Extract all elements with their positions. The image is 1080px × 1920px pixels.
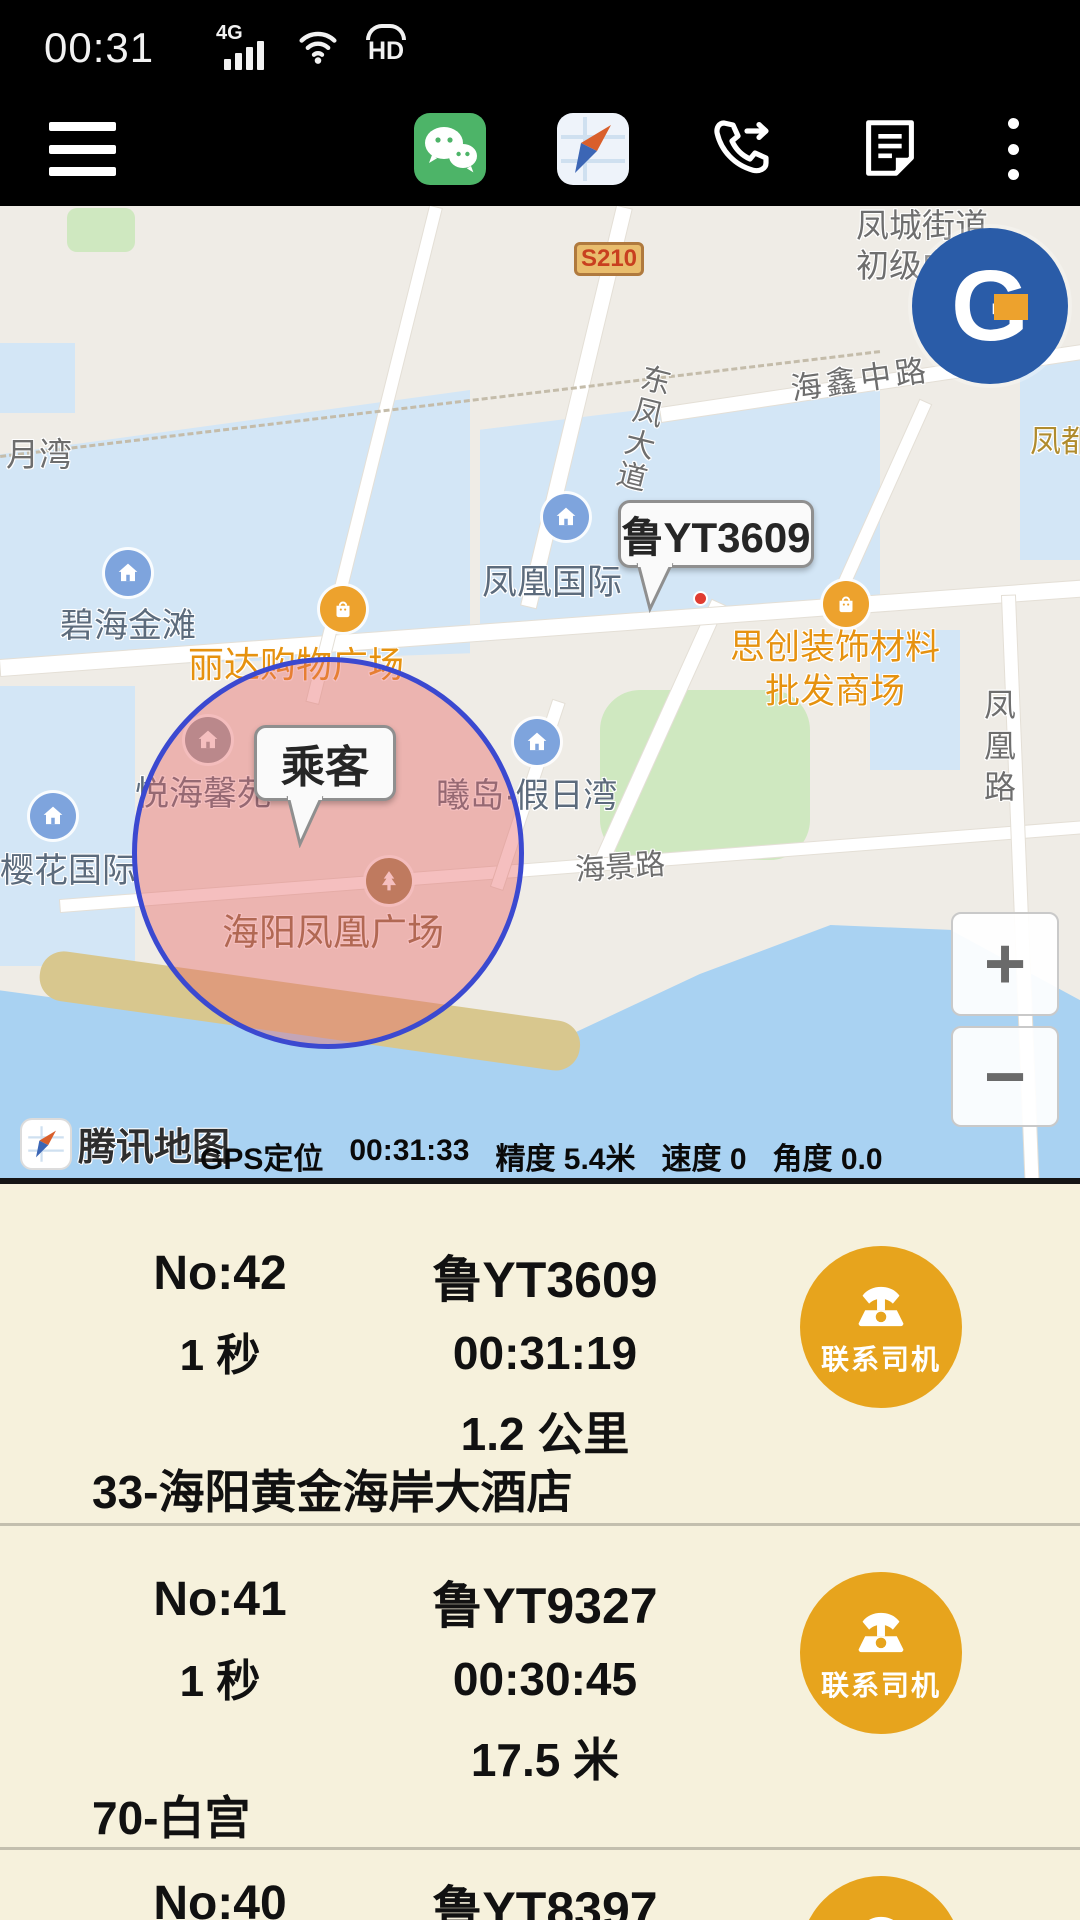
vehicle-marker-label: 鲁YT3609 xyxy=(621,504,810,565)
status-bar: 00:31 4G HD 12 xyxy=(0,0,1080,90)
home-poi-icon xyxy=(105,550,151,596)
map-viewport[interactable]: 凤城街道初级中学 S210 海鑫中路 凤都 月湾 东凤大道 碧海金滩 凤凰国际 … xyxy=(0,206,1080,1178)
clock: 00:31 xyxy=(44,24,154,72)
distance: 17.5 米 xyxy=(385,1724,705,1790)
map-water-block xyxy=(0,343,75,413)
gps-fix-label: GPS定位 xyxy=(200,1134,323,1178)
phone-icon xyxy=(848,1906,914,1920)
home-poi-icon xyxy=(30,793,76,839)
contact-driver-button[interactable]: 联系司机 xyxy=(800,1246,962,1408)
menu-button[interactable] xyxy=(49,122,116,176)
tencent-map-logo-icon xyxy=(22,1120,70,1168)
list-divider xyxy=(0,1523,1080,1526)
map-label-haixin-road: 海鑫中路 xyxy=(788,344,933,408)
update-age: 1 秒 xyxy=(95,1319,345,1383)
driver-row: No:40 鲁YT8397 联系司机 xyxy=(0,1834,1080,1920)
update-age: 1 秒 xyxy=(95,1645,345,1709)
contact-driver-button[interactable]: 联系司机 xyxy=(800,1572,962,1734)
signal-bars-icon xyxy=(224,41,264,70)
gps-status-line: GPS定位 00:31:33 精度 5.4米 速度 0 角度 0.0 xyxy=(200,1134,883,1178)
search-radius-circle xyxy=(132,657,524,1049)
map-label-fenghuang-road: 凤凰路 xyxy=(975,688,1021,811)
tencent-map-app-icon[interactable] xyxy=(557,113,629,185)
plate-number: 鲁YT3609 xyxy=(385,1240,705,1312)
map-label-sichuang-mall: 思创装饰材料批发商场 xyxy=(730,626,940,714)
gps-angle: 角度 0.0 xyxy=(773,1134,883,1178)
overflow-menu-button[interactable] xyxy=(1000,118,1026,180)
map-attribution: 腾讯地图 xyxy=(22,1116,230,1171)
vehicle-position-dot xyxy=(695,593,706,604)
home-poi-icon xyxy=(543,494,589,540)
plate-number: 鲁YT9327 xyxy=(385,1566,705,1638)
home-poi-icon xyxy=(514,719,560,765)
notes-icon[interactable] xyxy=(855,113,927,185)
driver-number: No:41 xyxy=(95,1572,345,1627)
app-screen: 00:31 4G HD 12 xyxy=(0,0,1080,1920)
vehicle-marker-bubble[interactable]: 鲁YT3609 xyxy=(618,500,814,568)
road-badge-s210: S210 xyxy=(574,242,644,276)
map-label-haijing-road: 海景路 xyxy=(574,839,667,889)
map-label-yuewan: 月湾 xyxy=(6,428,72,476)
hd-volte-icon: HD xyxy=(360,24,412,66)
map-label-fengdu: 凤都 xyxy=(1030,416,1080,461)
wifi-icon xyxy=(296,26,340,71)
passenger-marker-bubble[interactable]: 乘客 xyxy=(254,725,396,801)
station-name: 33-海阳黄金海岸大酒店 xyxy=(92,1456,572,1522)
wechat-icon[interactable] xyxy=(414,113,486,185)
map-zone-green xyxy=(600,690,810,860)
call-forward-icon[interactable] xyxy=(706,113,778,185)
map-label-bihai: 碧海金滩 xyxy=(60,598,196,647)
passenger-marker-label: 乘客 xyxy=(281,731,369,795)
gps-time: 00:31:33 xyxy=(349,1134,469,1178)
g-logo-notch xyxy=(994,294,1028,320)
map-label-fenghuang-intl: 凤凰国际 xyxy=(482,554,622,605)
cell-signal-icon: 4G xyxy=(216,22,286,72)
phone-icon xyxy=(848,1276,914,1334)
contact-driver-label: 联系司机 xyxy=(821,1338,941,1378)
driver-row: No:42 1 秒 鲁YT3609 00:31:19 1.2 公里 联系司机 3… xyxy=(0,1204,1080,1534)
map-label-yinghua: 樱花国际 xyxy=(0,843,136,892)
zoom-in-button[interactable]: + xyxy=(951,912,1059,1016)
contact-driver-label: 联系司机 xyxy=(821,1664,941,1704)
driver-number: No:42 xyxy=(95,1246,345,1301)
gps-speed: 速度 0 xyxy=(662,1134,747,1178)
phone-icon xyxy=(848,1602,914,1660)
mall-poi-icon xyxy=(823,581,869,627)
plate-number: 鲁YT8397 xyxy=(385,1870,705,1920)
g-float-button[interactable]: G xyxy=(912,228,1068,384)
report-time: 00:31:19 xyxy=(385,1326,705,1380)
gps-accuracy: 精度 5.4米 xyxy=(495,1134,635,1178)
map-zone-green xyxy=(67,208,135,252)
zoom-out-button[interactable]: − xyxy=(951,1026,1059,1127)
driver-list[interactable]: No:42 1 秒 鲁YT3609 00:31:19 1.2 公里 联系司机 3… xyxy=(0,1184,1080,1920)
contact-driver-button[interactable]: 联系司机 xyxy=(800,1876,962,1920)
distance: 1.2 公里 xyxy=(385,1398,705,1464)
mall-poi-icon xyxy=(320,586,366,632)
top-toolbar xyxy=(0,90,1080,206)
driver-number: No:40 xyxy=(95,1876,345,1920)
report-time: 00:30:45 xyxy=(385,1652,705,1706)
driver-row: No:41 1 秒 鲁YT9327 00:30:45 17.5 米 联系司机 7… xyxy=(0,1530,1080,1860)
